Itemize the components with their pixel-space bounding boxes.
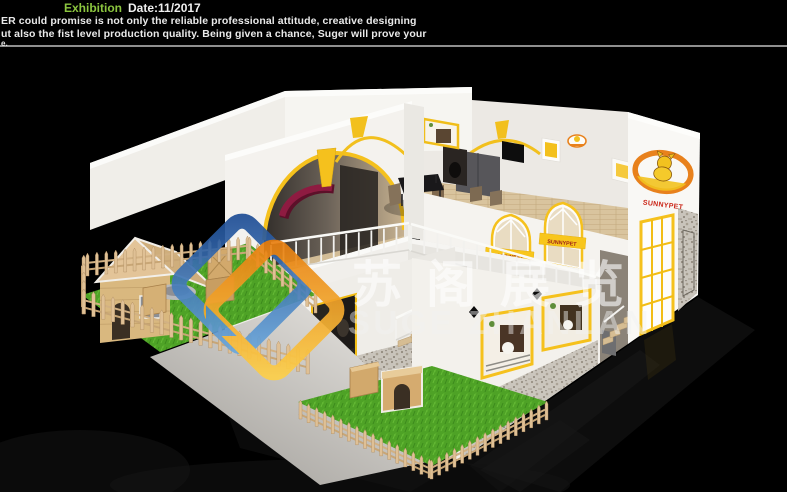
tagline-line2: ut also the fist level production qualit… bbox=[1, 28, 787, 41]
corner-pillar bbox=[404, 103, 424, 240]
header: ExhibitionDate:11/2017 ER could promise … bbox=[0, 0, 787, 48]
sunnypet-crest-icon bbox=[568, 135, 586, 147]
pet-house-small bbox=[382, 366, 422, 412]
upper-cat-tower bbox=[443, 146, 467, 186]
watermark-en-text: SUGE ZHANLAN bbox=[348, 304, 652, 341]
booth-render: SUNNYPET SUNNYPET bbox=[0, 0, 787, 492]
header-title: ExhibitionDate:11/2017 bbox=[64, 2, 787, 15]
exhibition-label: Exhibition bbox=[64, 1, 122, 15]
tagline-line1: ER could promise is not only the reliabl… bbox=[1, 15, 787, 28]
exhibition-render-page: ExhibitionDate:11/2017 ER could promise … bbox=[0, 0, 787, 492]
pet-crate-front bbox=[350, 362, 380, 398]
chair bbox=[388, 183, 402, 206]
tagline-line3: e. bbox=[1, 40, 787, 48]
wall-picture-upper bbox=[424, 119, 458, 148]
date-label: Date:11/2017 bbox=[128, 1, 201, 15]
